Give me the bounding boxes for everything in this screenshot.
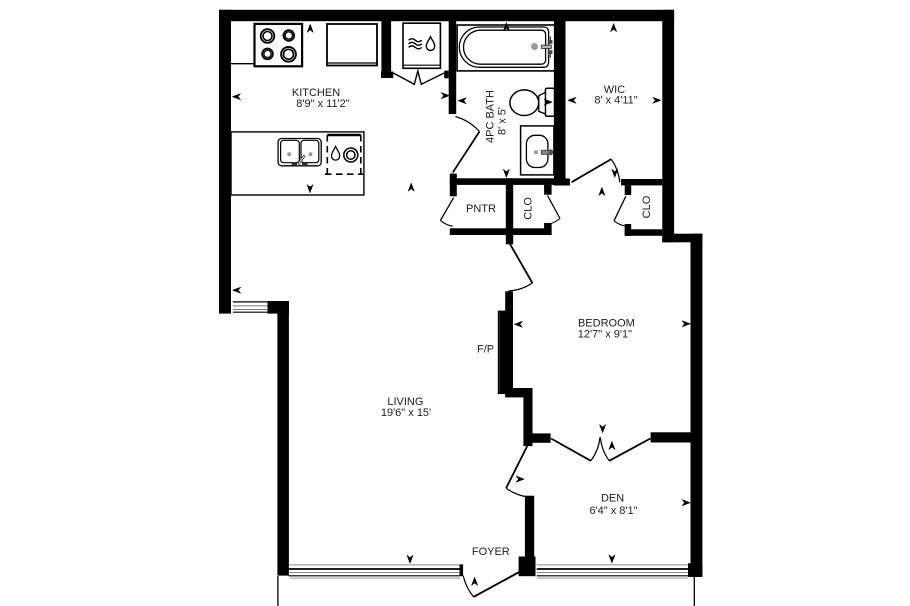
- svg-text:DEN: DEN: [601, 493, 624, 505]
- svg-text:BEDROOM: BEDROOM: [578, 317, 635, 329]
- svg-text:19'6" x 15': 19'6" x 15': [381, 407, 431, 419]
- svg-text:6'4" x 8'1": 6'4" x 8'1": [589, 505, 637, 517]
- svg-text:12'7" x 9'1": 12'7" x 9'1": [578, 329, 632, 341]
- svg-text:F/P: F/P: [477, 343, 494, 355]
- svg-text:8'9" x 11'2": 8'9" x 11'2": [296, 98, 349, 110]
- svg-text:PNTR: PNTR: [466, 203, 496, 215]
- svg-text:CLO: CLO: [523, 197, 535, 220]
- svg-text:8' x 5': 8' x 5': [497, 107, 509, 135]
- svg-text:8' x 4'11": 8' x 4'11": [594, 95, 637, 107]
- svg-text:CLO: CLO: [641, 195, 653, 218]
- svg-text:FOYER: FOYER: [472, 546, 510, 558]
- svg-text:4PC BATH: 4PC BATH: [485, 90, 497, 143]
